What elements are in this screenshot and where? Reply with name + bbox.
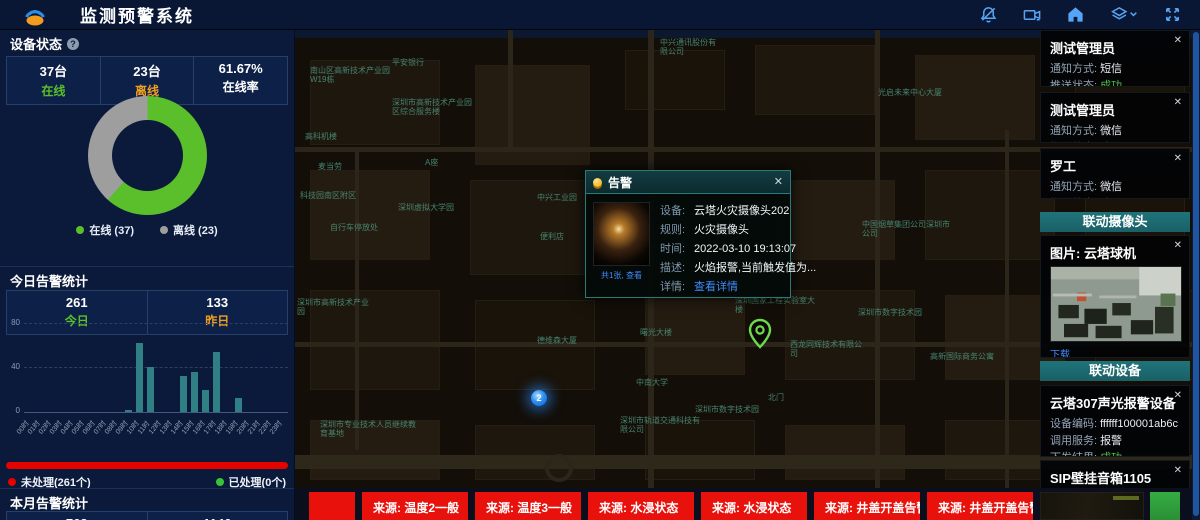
bottom-alert-bar: 来源: 温度2一般来源: 温度3一般来源: 水浸状态来源: 水浸状态来源: 井盖…: [295, 488, 1200, 520]
card-title: SIP壁挂音箱1105: [1050, 468, 1180, 487]
linked-camera-card: ✕ 图片: 云塔球机 下载: [1040, 235, 1190, 358]
popup-row: 设备:云塔火灾摄像头202: [660, 202, 816, 221]
map-label: 中南大学: [636, 378, 668, 387]
alert-popup-body: 共1张, 查看 设备:云塔火灾摄像头202规则:火灾摄像头时间:2022-03-…: [586, 194, 790, 297]
map-road: [875, 30, 880, 520]
popup-row-label: 描述:: [660, 259, 694, 278]
bottom-alert-card[interactable]: 来源: 井盖开盖告警: [927, 492, 1033, 520]
bar-slot: [191, 323, 198, 412]
map-label: 深圳市专业技术人员继续教育基地: [320, 420, 416, 438]
location-pin-icon[interactable]: [747, 318, 773, 350]
map-label: 深圳市数字技术园: [695, 405, 759, 414]
bar: [180, 376, 187, 412]
camera-card-title: 图片: 云塔球机: [1050, 243, 1180, 262]
vertical-scrollbar[interactable]: [1192, 30, 1200, 520]
card-title: 测试管理员: [1050, 100, 1180, 119]
popup-row-label: 详情:: [660, 278, 694, 297]
download-link[interactable]: 下载: [1050, 346, 1070, 358]
donut-legend: 在线 (37)离线 (23): [0, 222, 294, 238]
bar-slot: [158, 323, 165, 412]
card-row-value: 报警: [1100, 435, 1122, 447]
cluster-marker[interactable]: 2: [531, 390, 547, 406]
bar-slot: [136, 323, 143, 412]
bar-slot: [48, 323, 55, 412]
card-title: 罗工: [1050, 156, 1180, 175]
bar: [136, 343, 143, 412]
card-row-value: 成功: [1100, 198, 1122, 199]
bar-slot: [169, 323, 176, 412]
map-label: 深圳市高新技术产业园区综合服务楼: [392, 98, 474, 116]
card-row-value: 短信: [1100, 63, 1122, 75]
legend-item: 离线 (23): [160, 222, 218, 238]
popup-row: 描述:火焰报警,当前触发值为...: [660, 259, 816, 278]
bar-slot: [81, 323, 88, 412]
map-label: 平安银行: [392, 58, 424, 67]
bar-slot: [268, 323, 275, 412]
popup-row: 规则:火灾摄像头: [660, 221, 816, 240]
close-icon[interactable]: ✕: [1174, 97, 1182, 108]
legend-label: 在线 (37): [89, 225, 134, 237]
scrollbar-thumb[interactable]: [1193, 32, 1199, 516]
linked-device-header: 联动设备: [1040, 361, 1190, 381]
card-row-value: 成功: [1100, 80, 1122, 87]
bar-slot: [70, 323, 77, 412]
stat-cell: 61.67%在线率: [193, 57, 287, 104]
device-status-header: 设备状态 ?: [0, 30, 294, 52]
bar-slot: [224, 323, 231, 412]
bottom-alert-card[interactable]: 来源: 温度3一般: [475, 492, 581, 520]
popup-row-label: 设备:: [660, 202, 694, 221]
device-donut-chart: [88, 96, 207, 215]
header-toolbar: [979, 5, 1182, 24]
alert-thumb-wrap: 共1张, 查看: [593, 202, 650, 297]
bar-slot: [59, 323, 66, 412]
map-label: 高新国际商务公寓: [930, 352, 1002, 361]
bar-slot: [235, 323, 242, 412]
map-building: [925, 170, 1055, 260]
popup-row-label: 时间:: [660, 240, 694, 259]
card-row: 推送状态:成功: [1050, 78, 1180, 87]
app: 中兴通讯股份有限公司平安银行南山区高新技术产业园W19栋光启未来中心大厦深圳市高…: [0, 0, 1200, 520]
map-label: 曙光大楼: [640, 328, 672, 337]
green-snapshot-thumb[interactable]: [1150, 492, 1180, 520]
video-camera-icon[interactable]: [1022, 5, 1042, 24]
stat-label: 在线率: [194, 78, 287, 95]
map-label: 便利店: [540, 232, 564, 241]
stat-value: 261: [7, 295, 147, 310]
app-logo-icon: [22, 2, 48, 28]
y-tick-0: 0: [4, 406, 20, 415]
home-icon[interactable]: [1066, 5, 1085, 24]
map-building: [475, 425, 595, 480]
left-panel: 设备状态 ? 37台在线23台离线61.67%在线率 在线 (37)离线 (23…: [0, 30, 295, 520]
bar-slot: [37, 323, 44, 412]
stat-cell: 1146: [147, 512, 288, 520]
bar-slot: [103, 323, 110, 412]
y-tick-80: 80: [4, 318, 20, 327]
stat-value: 37台: [7, 61, 100, 80]
bar-slot: [213, 323, 220, 412]
card-row-value: 成功: [1100, 452, 1122, 457]
close-icon[interactable]: ✕: [1174, 35, 1182, 46]
stat-cell: 37台在线: [7, 57, 100, 104]
bar-slot: [125, 323, 132, 412]
legend-label: 离线 (23): [173, 225, 218, 237]
card-row: 推送状态:成功: [1050, 140, 1180, 143]
hourly-bar-chart: [26, 323, 286, 412]
map-label: 中国烟草集团公司深圳市公司: [862, 220, 954, 238]
bar-slot: [279, 323, 286, 412]
bar: [147, 367, 154, 412]
card-row-value: 微信: [1100, 181, 1122, 193]
bar: [213, 352, 220, 412]
card-row-value: 成功: [1100, 142, 1122, 143]
map-building: [915, 55, 1035, 140]
fire-snapshot-image[interactable]: [593, 202, 650, 266]
linked-camera-header: 联动摄像头: [1040, 212, 1190, 232]
stat-value: 133: [148, 295, 288, 310]
card-row-value: 微信: [1100, 125, 1122, 137]
map-building: [755, 45, 875, 115]
unhandled-progress-bar: [6, 462, 288, 469]
camera-photo[interactable]: [1050, 266, 1182, 342]
popup-row: 时间:2022-03-10 19:13:07: [660, 240, 816, 259]
unhandled-dot: [8, 478, 16, 486]
map-label: 中兴通讯股份有限公司: [660, 38, 722, 56]
legend-item: 在线 (37): [76, 222, 134, 238]
card-row: 调用服务:报警: [1050, 433, 1180, 450]
map-label: 光启未来中心大厦: [878, 88, 942, 97]
detail-link[interactable]: 查看详情: [694, 278, 738, 297]
legend-dot: [160, 226, 168, 234]
map-label: 自行车停放处: [330, 223, 378, 232]
y-tick-40: 40: [4, 362, 20, 371]
bar-slot: [92, 323, 99, 412]
card-row: 设备编码:ffffff100001ab6c: [1050, 416, 1180, 433]
map-label: 北门: [768, 393, 784, 402]
bar: [191, 372, 198, 412]
card-title: 云塔307声光报警设备: [1050, 393, 1180, 412]
map-label: A座: [425, 158, 438, 167]
map-building: [470, 180, 600, 275]
month-alerts-title: 本月告警统计: [10, 493, 88, 512]
month-alerts-table: 7631146: [6, 511, 288, 520]
legend-dot: [76, 226, 84, 234]
map-label: 深圳市轨道交通科技有限公司: [620, 416, 706, 434]
map-building: [625, 50, 725, 110]
popup-row-label: 规则:: [660, 221, 694, 240]
bottom-alert-card[interactable]: 来源: 水浸状态: [701, 492, 807, 520]
bar-slot: [147, 323, 154, 412]
popup-row-value: 2022-03-10 19:13:07: [694, 240, 796, 259]
popup-row-value: 火焰报警,当前触发值为...: [694, 259, 816, 278]
map-label: 中兴工业园: [537, 193, 577, 202]
bar-slot: [180, 323, 187, 412]
map-road: [508, 30, 513, 150]
card-title: 测试管理员: [1050, 38, 1180, 57]
map-label: 深圳市数字技术园: [858, 308, 922, 317]
stat-value: 23台: [101, 61, 194, 80]
card-row-value: ffffff100001ab6c: [1100, 418, 1178, 430]
notification-card: ✕云塔307声光报警设备设备编码:ffffff100001ab6c调用服务:报警…: [1040, 385, 1190, 457]
snapshot-caption-link[interactable]: 共1张, 查看: [593, 270, 650, 281]
bar-slot: [26, 323, 33, 412]
stat-label: 在线: [7, 82, 100, 99]
bar: [202, 390, 209, 412]
app-header: 监测预警系统: [0, 0, 1200, 30]
right-panel: 联动摄像头 ✕ 图片: 云塔球机 下载 联动设备 ✕: [1040, 30, 1190, 488]
card-row: 推送状态:成功: [1050, 196, 1180, 199]
month-alerts-header: 本月告警统计: [0, 488, 294, 510]
alert-popup-header: 告警 ✕: [586, 171, 790, 194]
stat-cell: 763: [7, 512, 147, 520]
map-label: 麦当劳: [318, 162, 342, 171]
notification-card: ✕罗工通知方式:微信推送状态:成功: [1040, 148, 1190, 199]
close-icon[interactable]: ✕: [774, 177, 783, 188]
bar: [125, 410, 132, 412]
x-axis: [24, 412, 288, 413]
donut-hole: [112, 120, 183, 191]
today-alerts-header: 今日告警统计: [0, 266, 294, 288]
close-icon[interactable]: ✕: [1174, 240, 1182, 251]
stat-value: 763: [7, 516, 147, 520]
popup-row-value: 云塔火灾摄像头202: [694, 202, 789, 221]
map-label: 德维森大厦: [537, 336, 577, 345]
stat-value: 61.67%: [194, 61, 287, 76]
close-icon[interactable]: ✕: [1174, 153, 1182, 164]
layers-icon[interactable]: [1109, 5, 1139, 24]
map-building: [785, 425, 905, 480]
bottom-alert-card[interactable]: 来源: 水浸状态: [588, 492, 694, 520]
card-row: 通知方式:短信: [1050, 61, 1180, 78]
handled-dot: [216, 478, 224, 486]
alert-popup-title: 告警: [608, 174, 774, 191]
notification-card: ✕测试管理员通知方式:微信推送状态:成功: [1040, 92, 1190, 143]
map-label: 南山区高新技术产业园W19栋: [310, 66, 392, 84]
map-label: 深圳国家工程实验室大楼: [735, 296, 817, 314]
bar-slot: [202, 323, 209, 412]
map-label: 西龙同辉技术有限公司: [790, 340, 862, 358]
map-label: 高科机楼: [305, 132, 337, 141]
alert-popup: 告警 ✕ 共1张, 查看 设备:云塔火灾摄像头202规则:火灾摄像头时间:202…: [585, 170, 791, 298]
bar-slot: [257, 323, 264, 412]
bell-muted-icon[interactable]: [979, 5, 998, 24]
card-row: 通知方式:微信: [1050, 123, 1180, 140]
map-label: 深圳虚拟大学园: [398, 203, 454, 212]
alert-card-partial[interactable]: [309, 492, 355, 520]
popup-row: 详情:查看详情: [660, 278, 816, 297]
popup-row-value: 火灾摄像头: [694, 221, 749, 240]
map-label: 科技园南区附区: [300, 191, 356, 200]
alert-popup-rows: 设备:云塔火灾摄像头202规则:火灾摄像头时间:2022-03-10 19:13…: [660, 202, 816, 297]
map-label: 深圳市高新技术产业园: [297, 298, 373, 316]
device-status-title: 设备状态: [10, 34, 62, 53]
close-icon[interactable]: ✕: [1174, 465, 1182, 476]
bar: [235, 398, 242, 412]
today-alerts-title: 今日告警统计: [10, 271, 88, 290]
alarm-bulb-icon: [593, 178, 602, 187]
card-row: 下发结果:成功: [1050, 450, 1180, 457]
close-icon[interactable]: ✕: [1174, 390, 1182, 401]
stat-value: 1146: [148, 516, 288, 520]
bar-slot: [246, 323, 253, 412]
map-building: [310, 170, 430, 260]
notification-card: ✕测试管理员通知方式:短信推送状态:成功: [1040, 30, 1190, 87]
bottom-alert-card[interactable]: 来源: 温度2一般: [362, 492, 468, 520]
help-icon[interactable]: ?: [67, 38, 79, 50]
hourly-x-labels: 00时01时02时03时04时05时06时07时08时09时10时11时12时1…: [26, 416, 286, 442]
bar-slot: [114, 323, 121, 412]
map-roundabout: [545, 454, 573, 482]
page-title: 监测预警系统: [80, 2, 194, 27]
expand-icon[interactable]: [1163, 5, 1182, 24]
bottom-alert-card[interactable]: 来源: 井盖开盖告警: [814, 492, 920, 520]
camera-snapshot-thumb[interactable]: [1040, 492, 1144, 520]
card-row: 通知方式:微信: [1050, 179, 1180, 196]
